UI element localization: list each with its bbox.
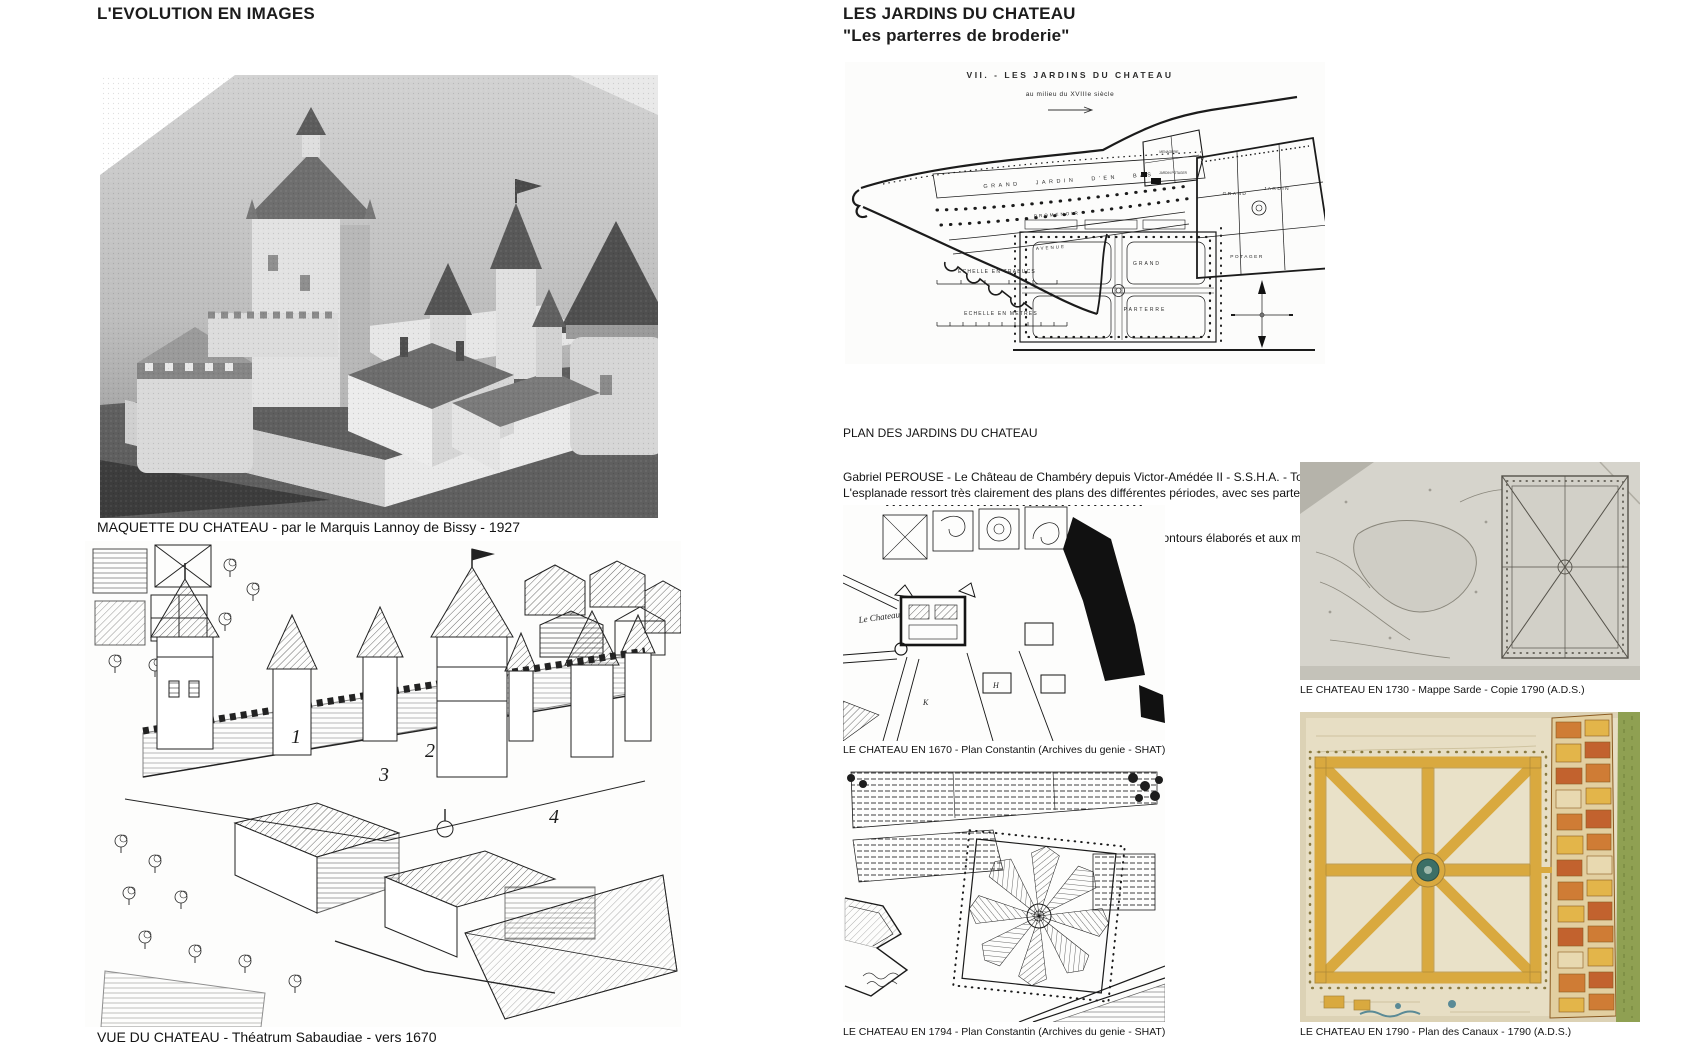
engraving-number-1: 1 (291, 726, 301, 748)
maquette-photo (100, 75, 658, 518)
plan-subheader: au milieu du XVIIIe siècle (1026, 91, 1115, 98)
plan-header: VII. - LES JARDINS DU CHATEAU (967, 70, 1174, 80)
garden-plan-figure: VII. - LES JARDINS DU CHATEAU au milieu … (845, 62, 1325, 364)
map-1730 (1300, 462, 1640, 680)
map-1790 (1300, 712, 1640, 1022)
plan-label-grand-1: GRAND (1133, 261, 1161, 267)
map-1670-caption: LE CHATEAU EN 1670 - Plan Constantin (Ar… (843, 744, 1165, 756)
engraving-number-4: 4 (549, 806, 559, 828)
engraving-caption: VUE DU CHATEAU - Théatrum Sabaudiae - ve… (97, 1029, 437, 1045)
engraving-view: 1 2 3 4 (85, 541, 681, 1027)
plan-label-menagerie: MENAGERIE (1159, 150, 1178, 154)
map-1790-caption: LE CHATEAU EN 1790 - Plan des Canaux - 1… (1300, 1026, 1571, 1038)
map-1670: Le Chateau H K (843, 505, 1165, 741)
right-column-title: LES JARDINS DU CHATEAU (843, 4, 1076, 24)
document-page: L'EVOLUTION EN IMAGES (0, 0, 1701, 1063)
engraving-number-2: 2 (425, 740, 435, 762)
engraving-number-3: 3 (378, 764, 389, 786)
map-1730-caption: LE CHATEAU EN 1730 - Mappe Sarde - Copie… (1300, 684, 1585, 696)
map-1670-label-k: K (922, 698, 929, 707)
map-1794 (843, 770, 1165, 1022)
engraving-illustration: 1 2 3 4 (85, 541, 681, 1027)
plan-label-parterre: PARTERRE (1124, 307, 1167, 313)
plan-label-jardin: JARDIN (1264, 186, 1290, 192)
right-column-subtitle: "Les parterres de broderie" (843, 26, 1070, 46)
plan-label-echelle-metres: ECHELLE EN METRES (964, 311, 1038, 317)
map-1794-illustration (843, 770, 1165, 1022)
plan-label-potager: POTAGER (1230, 254, 1264, 260)
maquette-caption: MAQUETTE DU CHATEAU - par le Marquis Lan… (97, 519, 520, 535)
map-1794-caption: LE CHATEAU EN 1794 - Plan Constantin (Ar… (843, 1026, 1165, 1038)
plan-source-title: PLAN DES JARDINS DU CHATEAU (843, 426, 1389, 441)
map-1730-illustration (1300, 462, 1640, 680)
maquette-photo-illustration (100, 75, 658, 518)
plan-label-grand-2: GRAND (1223, 191, 1248, 197)
map-1670-illustration: Le Chateau H K (843, 505, 1165, 741)
garden-plan-illustration: VII. - LES JARDINS DU CHATEAU au milieu … (845, 62, 1325, 364)
plan-label-echelle-trabucs: ECHELLE EN TRABUCS (958, 269, 1036, 275)
map-1790-illustration (1300, 712, 1640, 1022)
left-column-title: L'EVOLUTION EN IMAGES (97, 4, 315, 24)
plan-label-jardin-potager: JARDIN POTAGER (1159, 171, 1187, 175)
